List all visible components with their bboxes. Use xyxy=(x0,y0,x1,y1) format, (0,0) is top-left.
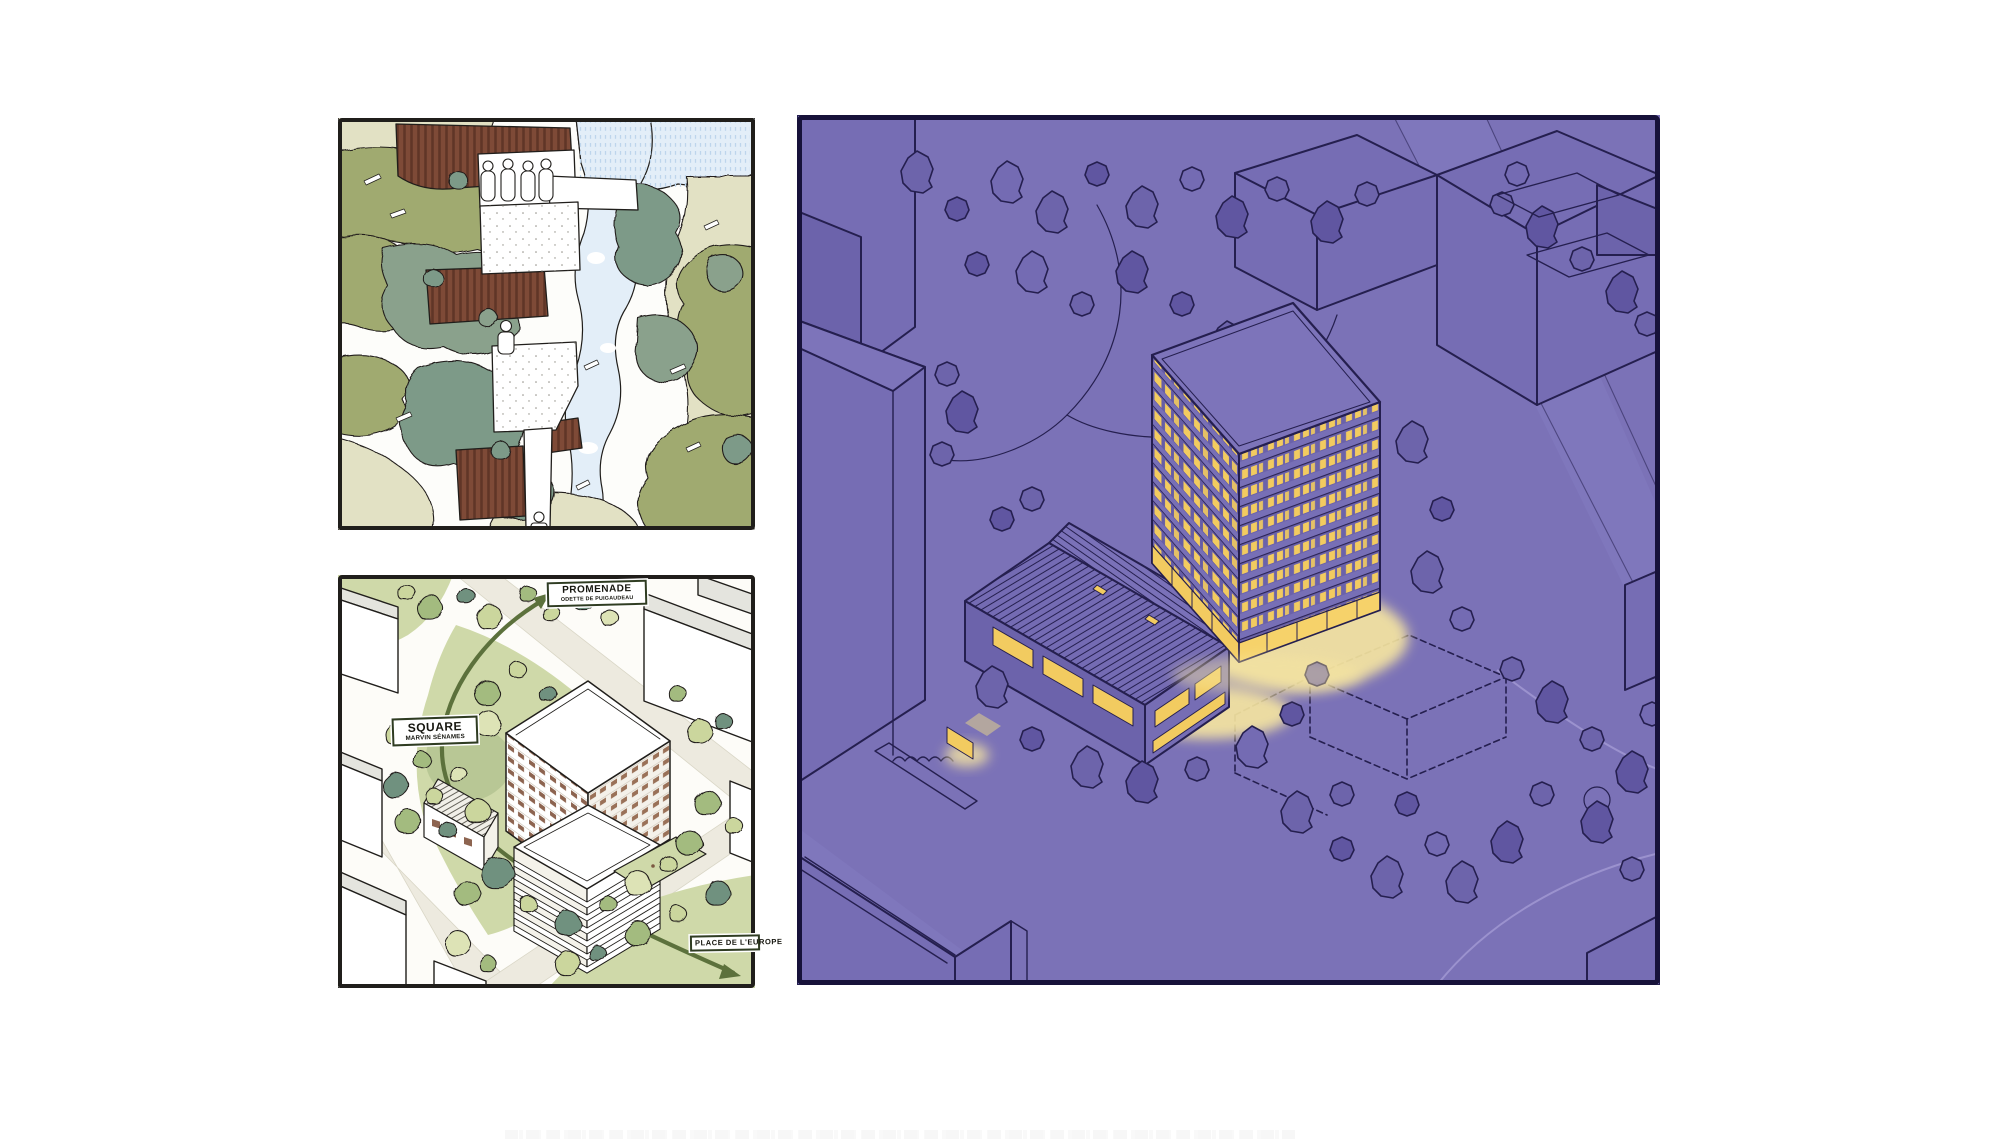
panel-site-axonometric: PROMENADE ODETTE DE PUIGAUDEAU SQUARE MA… xyxy=(338,575,755,988)
terrazzo-dots xyxy=(480,202,580,274)
label-promenade-subtitle: ODETTE DE PUIGAUDEAU xyxy=(552,595,642,603)
roof-plane xyxy=(456,446,526,520)
panel-night-axonometric xyxy=(797,115,1660,985)
label-square: SQUARE MARVIN SÉNAMES xyxy=(392,716,479,747)
panel-plan-detail xyxy=(338,118,755,530)
label-place-title: PLACE DE L'EUROPE xyxy=(695,938,755,947)
water-patch xyxy=(587,252,605,264)
site-axonometric-drawing xyxy=(338,575,755,988)
label-square-subtitle: MARVIN SÉNAMES xyxy=(397,733,473,742)
label-place-de-europe: PLACE DE L'EUROPE xyxy=(690,934,760,951)
cropped-page-artifact xyxy=(505,1130,1295,1139)
label-promenade: PROMENADE ODETTE DE PUIGAUDEAU xyxy=(547,580,648,608)
left-tall-building xyxy=(797,320,925,783)
night-axonometric-drawing xyxy=(797,115,1660,985)
water-patch xyxy=(600,343,616,353)
plan-detail-drawing xyxy=(338,118,755,530)
front-glow xyxy=(1172,655,1362,695)
illustration-board: PROMENADE ODETTE DE PUIGAUDEAU SQUARE MA… xyxy=(0,0,2000,1143)
